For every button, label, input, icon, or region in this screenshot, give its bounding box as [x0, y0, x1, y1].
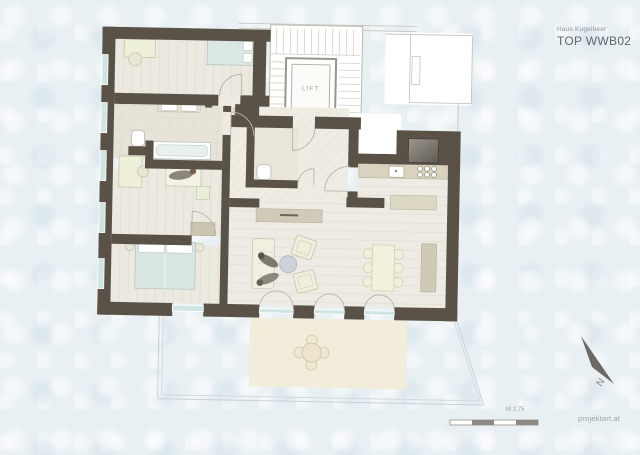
lightwell	[356, 113, 401, 158]
wall-wc	[246, 179, 298, 188]
scale-bar-segment	[472, 420, 494, 425]
bathtub-basin	[156, 145, 207, 157]
burner	[432, 167, 437, 172]
wall-interior	[145, 159, 222, 169]
window	[100, 151, 107, 181]
scale-bar	[450, 420, 538, 425]
kitchen-island	[390, 195, 436, 210]
pillow	[138, 243, 164, 252]
wardrobe	[191, 222, 215, 235]
bed-split-line	[165, 255, 166, 289]
french-door-glass	[314, 310, 344, 315]
window	[98, 259, 105, 289]
burner	[424, 172, 429, 177]
window	[172, 305, 203, 312]
window	[99, 203, 106, 233]
wall-interior	[229, 198, 259, 208]
north-arrow: N	[581, 336, 614, 389]
burner	[418, 166, 423, 171]
lift-label: LIFT	[302, 85, 320, 92]
desk-chair	[128, 53, 141, 66]
scale-bar-segment	[516, 420, 538, 425]
wall-bedroom1-right	[252, 29, 266, 99]
dining-table	[372, 245, 395, 291]
wall-stub	[347, 191, 357, 199]
wall-exterior-bottom	[293, 305, 314, 318]
wc-toilet	[257, 165, 271, 180]
terrace-table	[302, 343, 321, 362]
dining-area	[363, 243, 437, 292]
burner	[431, 173, 436, 178]
wall-exterior-bottom	[344, 306, 364, 319]
wall-exterior-bottom	[97, 302, 172, 316]
pillow	[243, 53, 252, 62]
glass-panel	[408, 138, 438, 163]
pillow	[243, 41, 252, 50]
wall-exterior-bottom	[203, 304, 259, 318]
bedside-table	[195, 243, 204, 252]
burner	[425, 166, 430, 171]
wall-exterior-bottom	[394, 307, 457, 321]
website-label: projektart.at	[578, 414, 620, 423]
wall-interior	[114, 93, 218, 106]
wall-stairwell-side	[231, 115, 293, 128]
toilet	[131, 130, 144, 146]
scale-label: M 1:75	[506, 407, 524, 413]
neighbour-area	[384, 32, 472, 106]
page: Haus Kugelbeer TOP WWB02	[0, 0, 640, 455]
french-door-glass	[259, 309, 293, 314]
neighbour-detail	[412, 57, 421, 85]
wall-interior	[221, 135, 230, 199]
pillow	[166, 244, 192, 253]
coffee-table	[280, 256, 297, 273]
window	[102, 55, 109, 85]
wall-wc	[246, 127, 255, 187]
floor-plan-drawing: LIFT	[0, 0, 640, 455]
terrace-garden	[158, 316, 486, 405]
bedroom-3	[124, 241, 204, 290]
wall-interior	[223, 106, 231, 112]
french-door-glass	[364, 311, 394, 316]
burner	[417, 172, 422, 177]
building-plan: LIFT	[96, 21, 491, 405]
north-label: N	[594, 376, 607, 388]
dining-sideboard	[421, 244, 437, 292]
side-table	[196, 186, 209, 199]
wall-interior	[112, 234, 192, 246]
window	[101, 103, 108, 133]
